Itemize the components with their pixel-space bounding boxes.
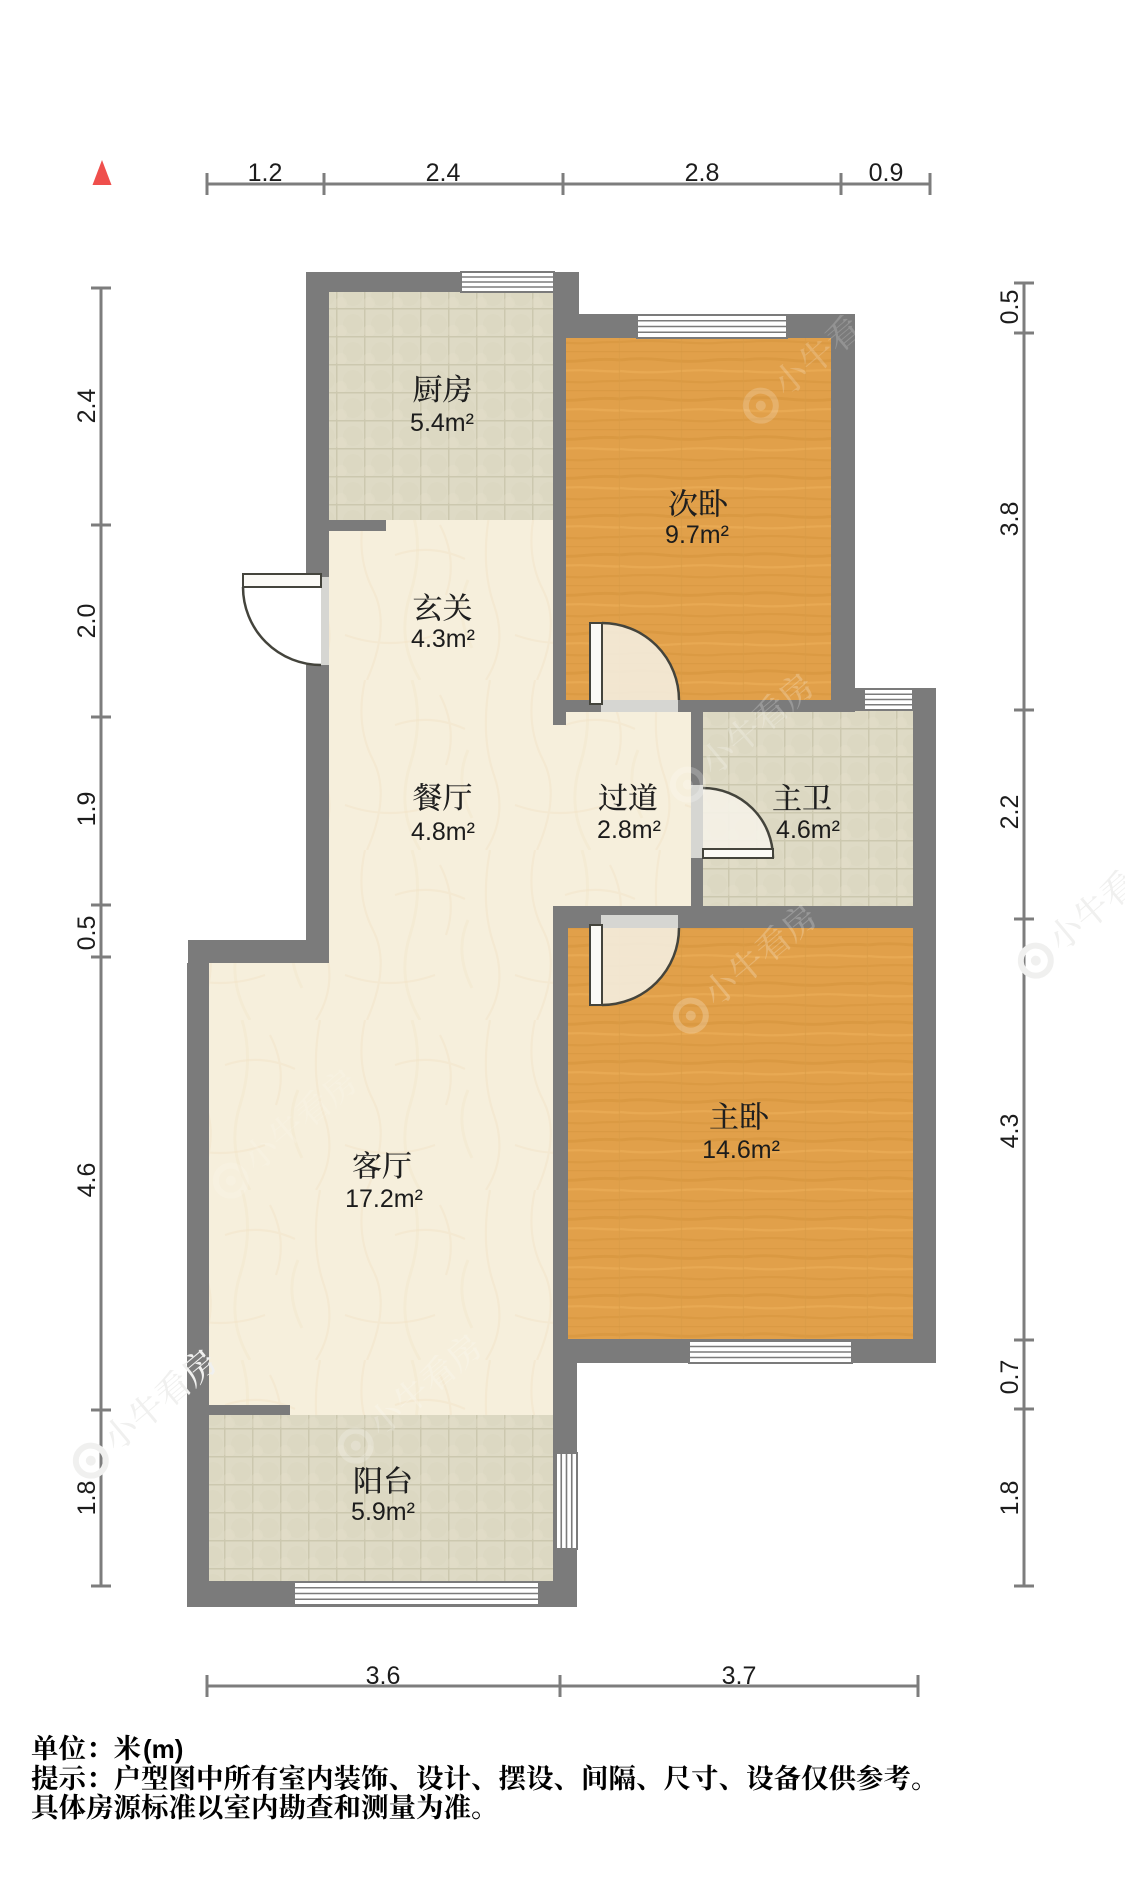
svg-text:0.9: 0.9 — [869, 159, 904, 187]
svg-text:14.6m²: 14.6m² — [702, 1136, 780, 1164]
svg-text:9.7m²: 9.7m² — [665, 521, 729, 549]
svg-text:4.3: 4.3 — [996, 1114, 1024, 1149]
svg-text:0.5: 0.5 — [73, 916, 101, 951]
svg-text:0.7: 0.7 — [996, 1360, 1024, 1395]
svg-text:4.8m²: 4.8m² — [411, 818, 475, 846]
svg-text:1.9: 1.9 — [73, 792, 101, 827]
svg-text:2.8: 2.8 — [685, 159, 720, 187]
svg-text:2.8m²: 2.8m² — [597, 816, 661, 844]
svg-text:(m): (m) — [143, 1734, 183, 1764]
svg-text:3.6: 3.6 — [366, 1662, 401, 1690]
svg-text:3.8: 3.8 — [996, 502, 1024, 537]
svg-text:4.3m²: 4.3m² — [411, 625, 475, 653]
svg-text:5.9m²: 5.9m² — [351, 1498, 415, 1526]
svg-text:1.8: 1.8 — [73, 1481, 101, 1516]
svg-text:1.8: 1.8 — [996, 1481, 1024, 1516]
svg-text:0.5: 0.5 — [996, 290, 1024, 325]
svg-text:4.6: 4.6 — [73, 1163, 101, 1198]
svg-text:2.0: 2.0 — [73, 604, 101, 639]
svg-text:2.2: 2.2 — [996, 795, 1024, 830]
svg-text:4.6m²: 4.6m² — [776, 816, 840, 844]
svg-text:2.4: 2.4 — [73, 389, 101, 424]
svg-text:5.4m²: 5.4m² — [410, 409, 474, 437]
svg-text:17.2m²: 17.2m² — [345, 1185, 423, 1213]
svg-text:3.7: 3.7 — [722, 1662, 757, 1690]
svg-text:1.2: 1.2 — [248, 159, 283, 187]
svg-text:2.4: 2.4 — [426, 159, 461, 187]
